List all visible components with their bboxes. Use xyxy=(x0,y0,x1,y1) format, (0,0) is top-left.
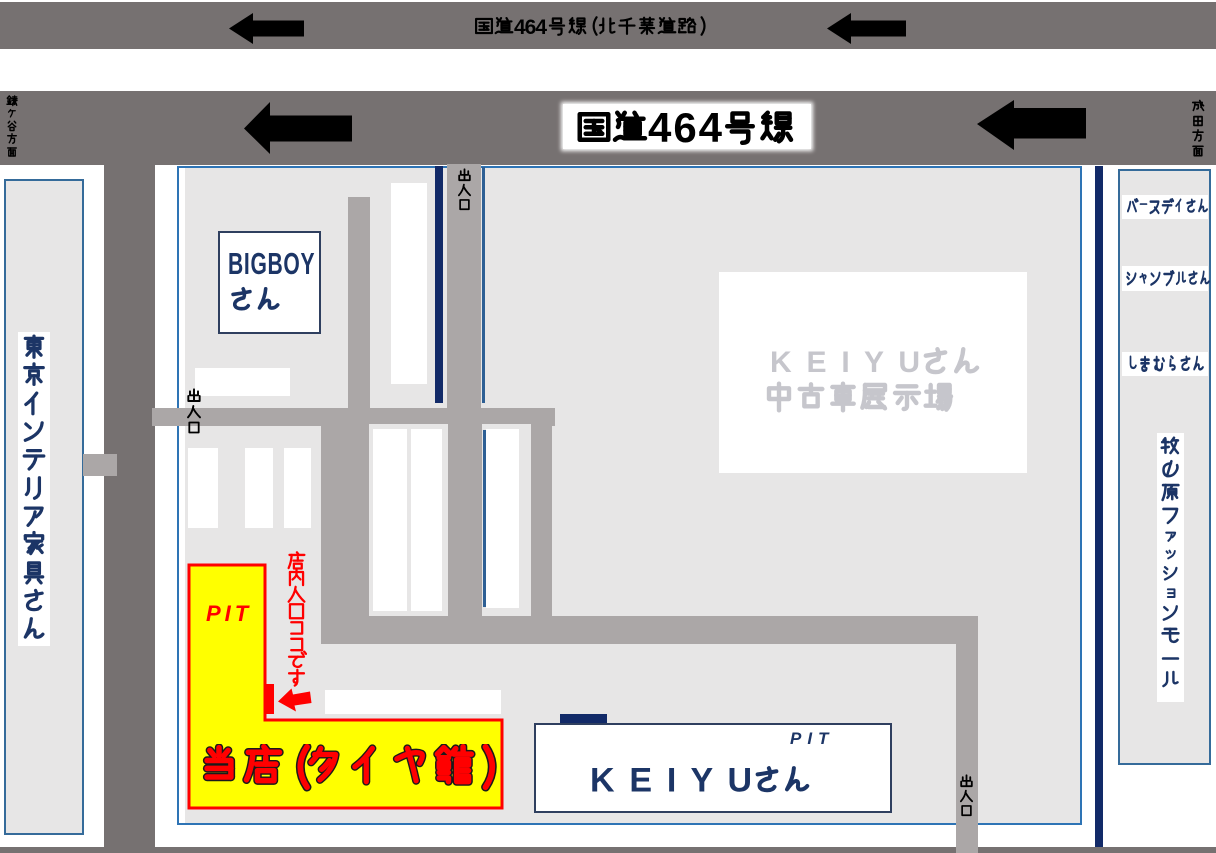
svg-text:K E I Y U: K E I Y U xyxy=(770,346,920,379)
svg-text:K E I Y U: K E I Y U xyxy=(590,762,752,799)
svg-text:464: 464 xyxy=(648,109,723,151)
svg-text:464: 464 xyxy=(514,16,547,39)
